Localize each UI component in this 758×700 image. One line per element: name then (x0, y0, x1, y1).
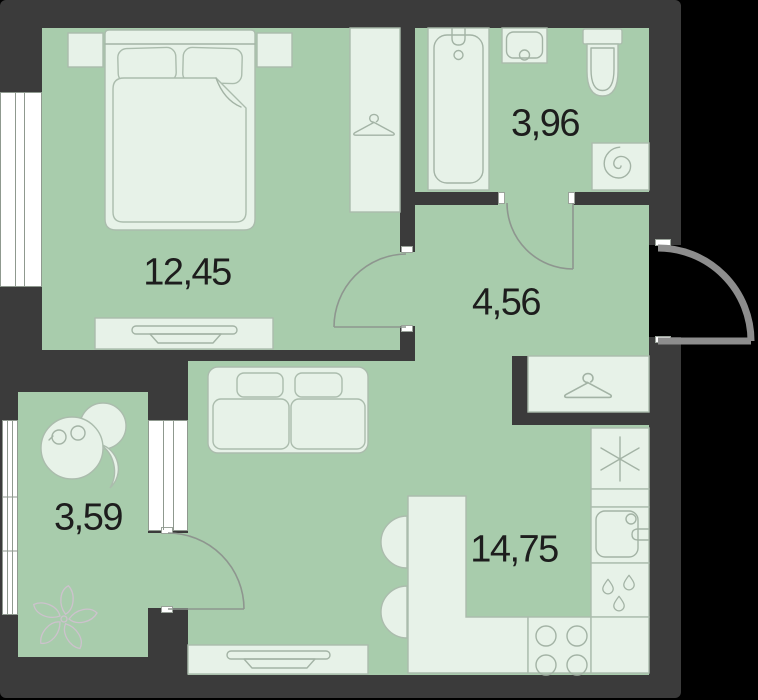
area-label-kitchen-living: 14,75 (470, 529, 558, 572)
area-label-bedroom: 12,45 (143, 252, 231, 295)
area-label-hallway: 4,56 (472, 282, 540, 325)
area-label-balcony: 3,59 (54, 497, 122, 540)
bedroom-window (0, 92, 42, 287)
balcony-door-opening (148, 533, 188, 608)
bathroom-door-jamb-left (498, 192, 505, 204)
balcony-glazing-window (2, 420, 18, 615)
bedroom-door-opening (400, 252, 415, 326)
closet-wall-bottom (512, 412, 649, 425)
balcony-door-window (148, 420, 188, 531)
entrance-door-jamb-top (655, 239, 671, 246)
balcony-door-jamb-bottom (161, 606, 173, 613)
entrance-opening (649, 245, 681, 337)
entrance-door-jamb-bottom (655, 336, 671, 343)
room-kitchen-living-floor (188, 361, 649, 675)
area-label-bathroom: 3,96 (511, 103, 579, 146)
balcony-door-jamb-top (161, 527, 173, 534)
bedroom-door-jamb-top (401, 246, 413, 253)
apartment-floor-plan: 12,45 3,96 4,56 14,75 3,59 (0, 0, 758, 700)
bedroom-door-jamb-bottom (401, 325, 413, 332)
room-bedroom-floor (42, 28, 400, 350)
bathroom-door-opening (498, 192, 573, 205)
bathroom-door-jamb-right (568, 192, 575, 204)
